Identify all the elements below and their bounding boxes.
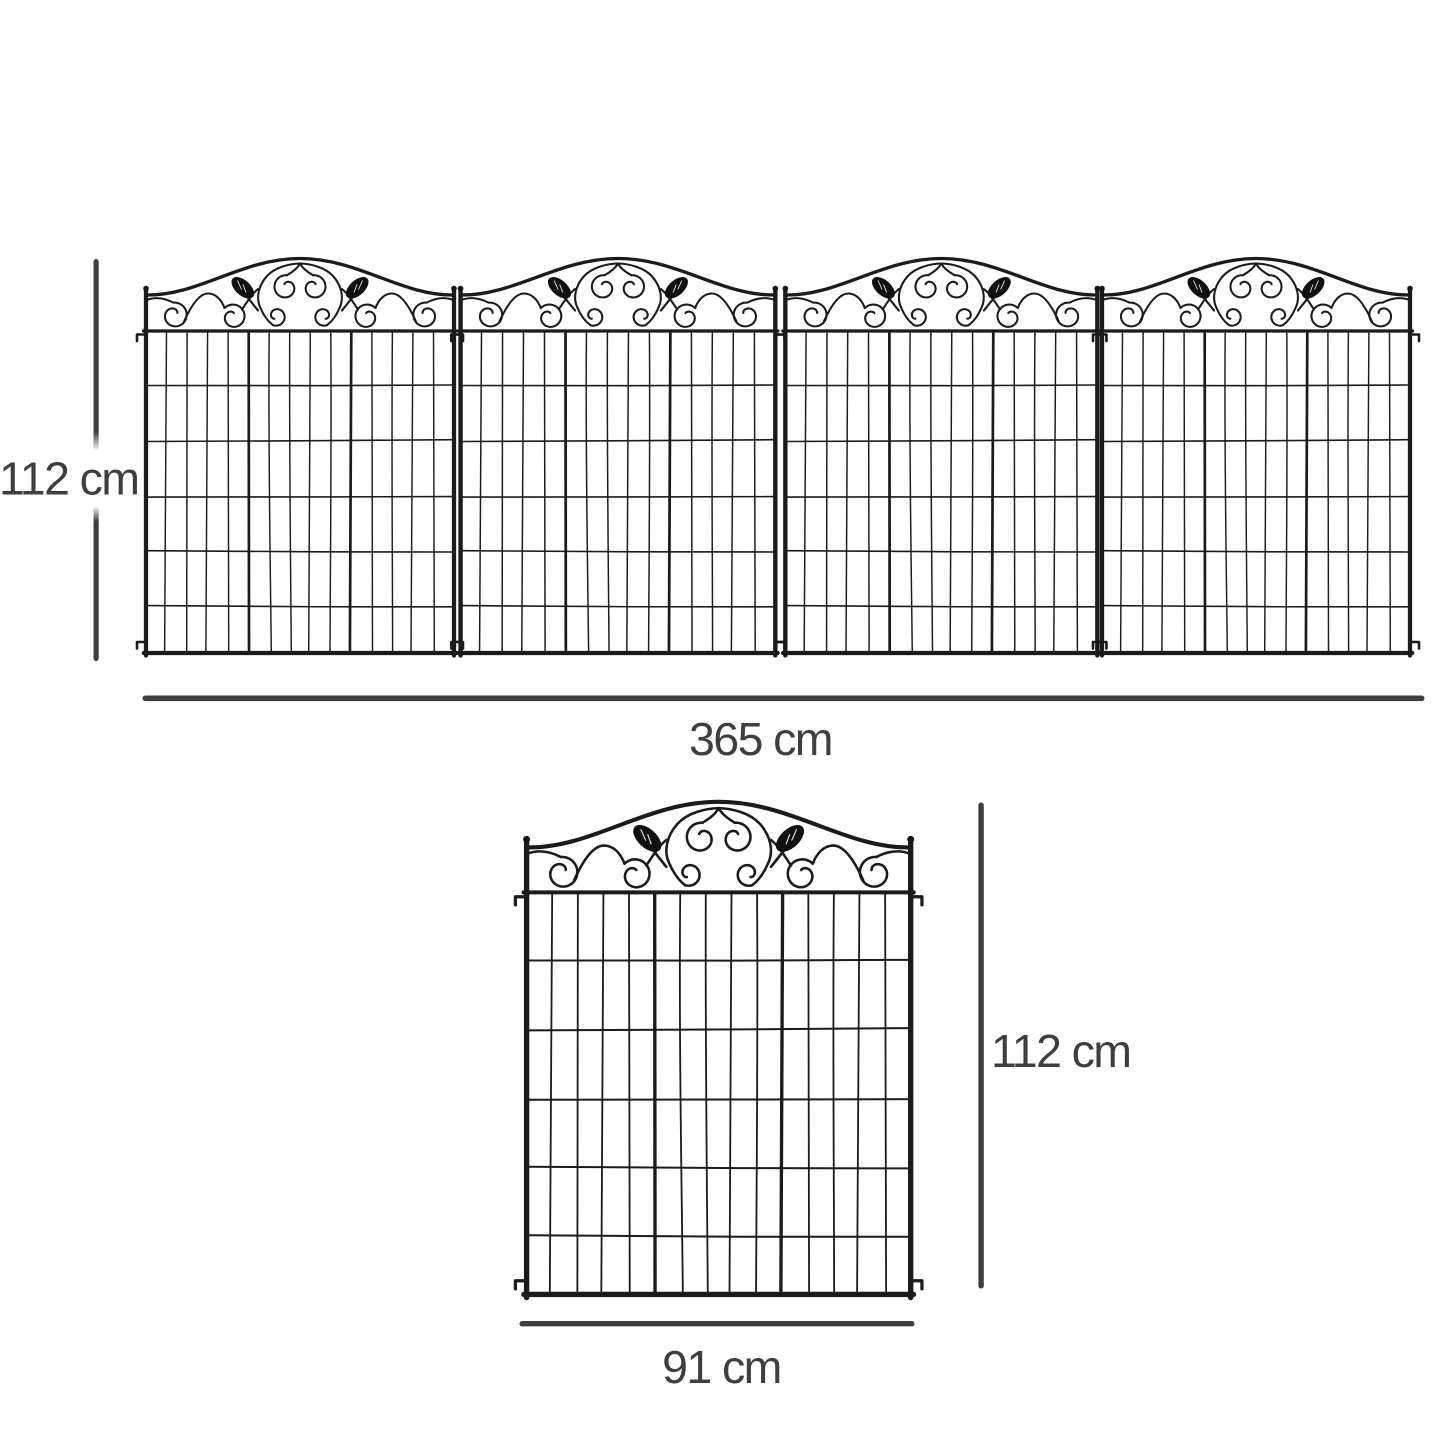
svg-text:365 cm: 365 cm <box>689 713 832 765</box>
svg-text:91 cm: 91 cm <box>662 1341 781 1393</box>
svg-text:112 cm: 112 cm <box>0 453 138 505</box>
svg-text:112 cm: 112 cm <box>991 1025 1130 1077</box>
